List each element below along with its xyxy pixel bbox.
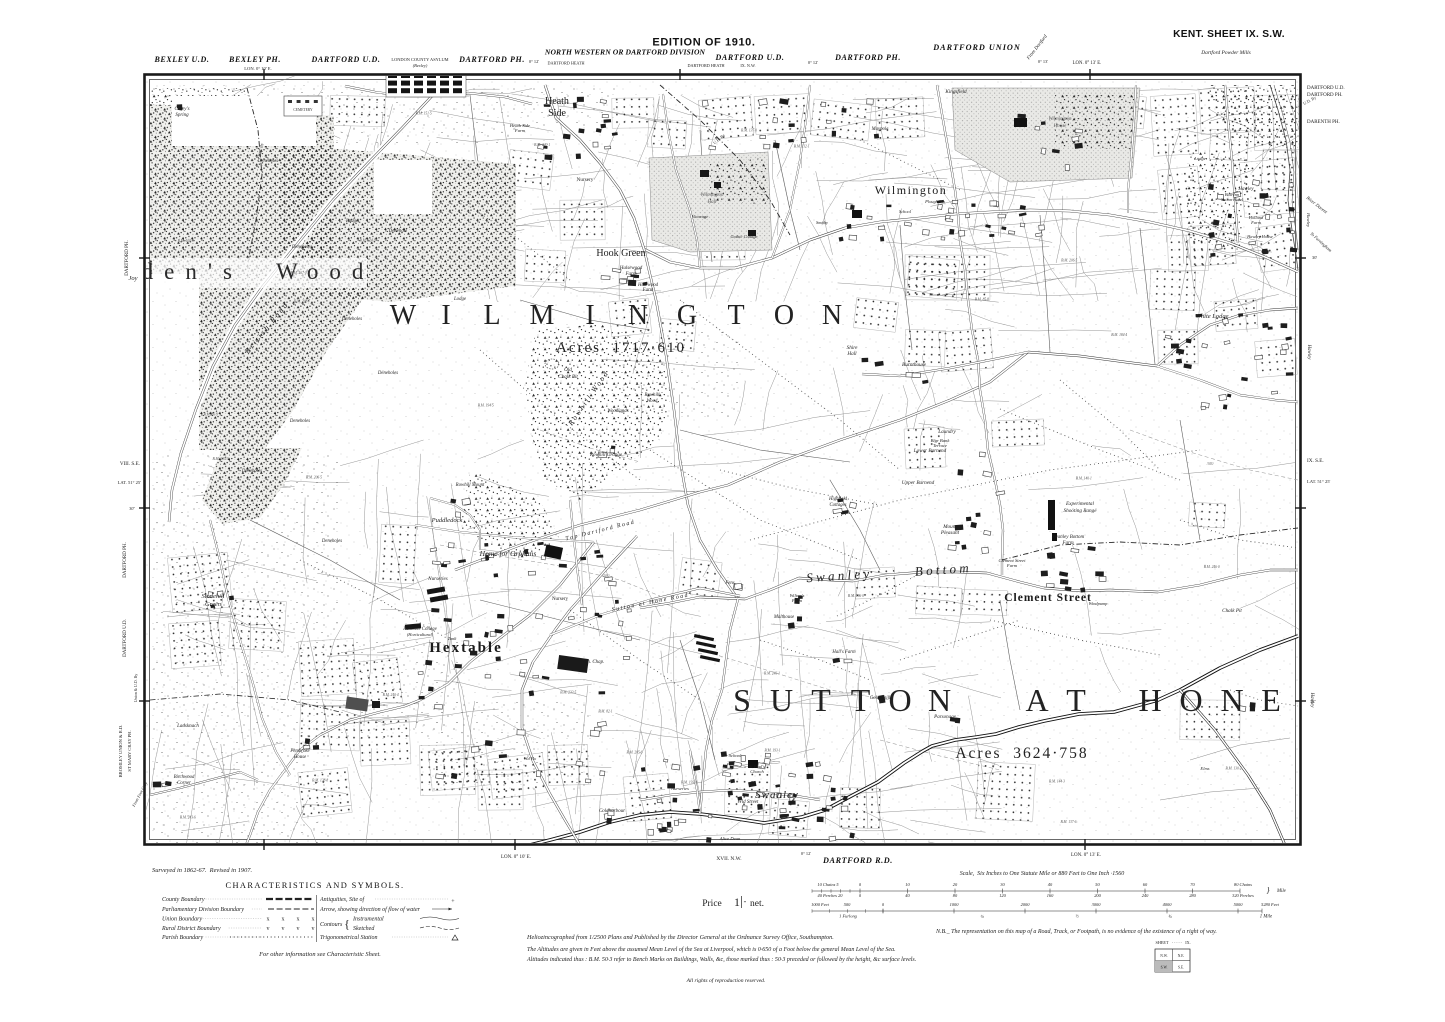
svg-text:Heath: Heath bbox=[545, 96, 569, 107]
svg-text:S: S bbox=[733, 682, 751, 718]
svg-text:Union & U.D. By: Union & U.D. By bbox=[133, 674, 138, 703]
svg-text:Goldenhill: Goldenhill bbox=[870, 696, 891, 701]
svg-text:DARTFORD PH.: DARTFORD PH. bbox=[458, 55, 525, 64]
svg-text:Farm: Farm bbox=[1006, 563, 1018, 568]
svg-text:L: L bbox=[483, 300, 500, 331]
svg-text:Chalk Pit: Chalk Pit bbox=[1222, 608, 1242, 614]
svg-text:G: G bbox=[677, 300, 697, 331]
svg-text:Rowhill Mount: Rowhill Mount bbox=[455, 483, 485, 488]
svg-text:N: N bbox=[628, 300, 648, 331]
svg-text:House: House bbox=[1053, 124, 1068, 129]
svg-text:Maypole: Maypole bbox=[871, 127, 890, 132]
svg-text:Rowhill Grange: Rowhill Grange bbox=[589, 453, 623, 458]
svg-text:Sutton Hotel: Sutton Hotel bbox=[1221, 197, 1244, 202]
svg-text:Highfield: Highfield bbox=[828, 497, 848, 502]
svg-text:Coldharbour: Coldharbour bbox=[599, 809, 625, 814]
svg-text:DARTFORD HEATH: DARTFORD HEATH bbox=[547, 61, 584, 66]
svg-text:Ladsknach: Ladsknach bbox=[176, 724, 199, 729]
svg-text:-: - bbox=[744, 897, 747, 906]
svg-text:30'': 30'' bbox=[129, 506, 135, 511]
svg-text:W: W bbox=[390, 300, 417, 331]
svg-text:Burnthouse: Burnthouse bbox=[902, 362, 927, 368]
svg-text:(Horticultural): (Horticultural) bbox=[407, 632, 434, 637]
svg-text:Plough Inn: Plough Inn bbox=[924, 199, 945, 204]
svg-text:Farm: Farm bbox=[514, 128, 526, 133]
svg-text:240: 240 bbox=[1142, 893, 1149, 898]
svg-text:B.M. 137·0: B.M. 137·0 bbox=[741, 129, 757, 133]
svg-text:LON. 0° 13' E.: LON. 0° 13' E. bbox=[1071, 853, 1101, 858]
svg-text:DARTFORD PH.: DARTFORD PH. bbox=[834, 53, 901, 62]
svg-text:x: x bbox=[282, 917, 285, 923]
svg-text:B.M. 167·0: B.M. 167·0 bbox=[291, 271, 307, 275]
svg-text:B.M. 240·1: B.M. 240·1 bbox=[534, 143, 550, 147]
svg-text:30'': 30'' bbox=[1310, 699, 1316, 704]
svg-text:Dartford Powder Mills: Dartford Powder Mills bbox=[1200, 49, 1251, 56]
svg-text:1 Mile: 1 Mile bbox=[1260, 915, 1273, 920]
svg-text:XVII. N.W.: XVII. N.W. bbox=[716, 856, 741, 862]
svg-text:BROMLEY UNION & R.D.: BROMLEY UNION & R.D. bbox=[118, 725, 123, 778]
svg-text:B.M. 112·1: B.M. 112·1 bbox=[794, 145, 810, 149]
svg-text:School: School bbox=[899, 209, 912, 214]
svg-text:Church: Church bbox=[750, 769, 764, 774]
svg-text:30': 30' bbox=[1312, 255, 1317, 260]
svg-text:LON. 0° 13' E.: LON. 0° 13' E. bbox=[1073, 61, 1102, 66]
svg-text:B.M. 240·4: B.M. 240·4 bbox=[383, 693, 399, 697]
svg-text:T: T bbox=[811, 682, 831, 718]
svg-text:4000: 4000 bbox=[1163, 902, 1173, 907]
svg-text:N.E.: N.E. bbox=[1178, 954, 1185, 958]
svg-text:Farm: Farm bbox=[1061, 541, 1074, 546]
svg-text:B.M. 138·8: B.M. 138·8 bbox=[312, 779, 328, 783]
svg-text:Antiquities, Site of: Antiquities, Site of bbox=[319, 896, 365, 903]
svg-text:Alice Dean: Alice Dean bbox=[719, 836, 741, 841]
svg-text:DARTFORD U.D.: DARTFORD U.D. bbox=[715, 53, 785, 62]
svg-text:Hawley: Hawley bbox=[1237, 187, 1254, 192]
svg-text:Windpump: Windpump bbox=[1089, 601, 1109, 606]
svg-text:Green: Green bbox=[205, 601, 221, 608]
svg-text:Instrumental: Instrumental bbox=[352, 917, 384, 923]
svg-text:Malthouse: Malthouse bbox=[773, 615, 795, 620]
svg-text:Trigonometrical Station: Trigonometrical Station bbox=[320, 935, 378, 941]
svg-text:IX. S.E.: IX. S.E. bbox=[1307, 458, 1324, 464]
svg-text:B.M. 193·1: B.M. 193·1 bbox=[765, 749, 781, 753]
svg-text:School: School bbox=[729, 753, 742, 758]
svg-text:Hawley House: Hawley House bbox=[1246, 234, 1273, 239]
svg-text:Deneholes: Deneholes bbox=[291, 245, 312, 250]
svg-text:x: x bbox=[312, 917, 315, 923]
svg-text:LON. 0° 10' E.: LON. 0° 10' E. bbox=[244, 66, 272, 71]
svg-text:Corner: Corner bbox=[177, 781, 191, 786]
svg-text:Meth. Chap.: Meth. Chap. bbox=[579, 660, 605, 665]
svg-text:O: O bbox=[774, 300, 794, 331]
svg-text:5000: 5000 bbox=[1234, 902, 1244, 907]
svg-text:Wld Street: Wld Street bbox=[738, 800, 759, 805]
svg-text:T: T bbox=[1066, 682, 1086, 718]
svg-text:Terrace: Terrace bbox=[933, 443, 947, 448]
svg-text:v: v bbox=[267, 926, 270, 932]
svg-text:1: 1 bbox=[734, 895, 740, 909]
svg-text:Lodge: Lodge bbox=[1193, 156, 1205, 161]
svg-text:500: 500 bbox=[844, 902, 851, 907]
svg-text:DARTFORD PH.: DARTFORD PH. bbox=[123, 542, 128, 578]
svg-text:1 Furlong: 1 Furlong bbox=[839, 914, 857, 919]
svg-text:Swanley Bottom: Swanley Bottom bbox=[1052, 535, 1085, 540]
svg-text:B.M. 233·5: B.M. 233·5 bbox=[560, 690, 576, 694]
svg-text:0° 13': 0° 13' bbox=[1038, 59, 1048, 64]
svg-text:BEXLEY PH.: BEXLEY PH. bbox=[228, 55, 281, 64]
svg-text:Spring: Spring bbox=[175, 113, 189, 118]
svg-text:Hall's Farm: Hall's Farm bbox=[831, 650, 856, 655]
svg-text:B.M. 137·6: B.M. 137·6 bbox=[1060, 820, 1076, 824]
svg-text:Sketched: Sketched bbox=[353, 926, 375, 932]
svg-text:BEXLEY U.D.: BEXLEY U.D. bbox=[154, 55, 210, 64]
svg-text:Wood: Wood bbox=[647, 399, 658, 404]
svg-text:House: House bbox=[293, 755, 307, 760]
svg-text:Farm: Farm bbox=[624, 272, 637, 277]
svg-text:Kingsfield: Kingsfield bbox=[944, 88, 967, 95]
svg-text:Laundry: Laundry bbox=[937, 429, 956, 435]
svg-text:DARTFORD U.D.: DARTFORD U.D. bbox=[311, 55, 381, 64]
svg-text:320 Perches: 320 Perches bbox=[1232, 893, 1254, 898]
svg-text:LAT. 51° 25': LAT. 51° 25' bbox=[1307, 479, 1331, 484]
svg-text:Deneholes: Deneholes bbox=[257, 159, 278, 164]
svg-text:Experimental: Experimental bbox=[1065, 501, 1095, 507]
svg-text:Old: Old bbox=[564, 367, 572, 373]
svg-text:Hawley: Hawley bbox=[1306, 344, 1311, 361]
svg-text:B.M. 151·5: B.M. 151·5 bbox=[416, 111, 432, 115]
svg-text:N.B._ The representation on th: N.B._ The representation on this map of … bbox=[935, 928, 1217, 935]
svg-text:Nursery: Nursery bbox=[552, 597, 569, 602]
svg-text:Pembroke: Pembroke bbox=[289, 749, 310, 754]
svg-text:1000 Feet: 1000 Feet bbox=[811, 902, 829, 907]
svg-text:E: E bbox=[1261, 682, 1281, 718]
svg-text:0° 12': 0° 12' bbox=[529, 59, 539, 64]
svg-text:Cottages: Cottages bbox=[829, 503, 846, 508]
svg-text:Deneholes: Deneholes bbox=[321, 539, 342, 544]
svg-text:Acres 3624·758: Acres 3624·758 bbox=[955, 745, 1088, 762]
svg-text:Hook Green: Hook Green bbox=[596, 248, 645, 259]
svg-text:B.M. 140·1: B.M. 140·1 bbox=[1076, 476, 1092, 480]
svg-text:U: U bbox=[770, 682, 793, 718]
svg-text:N: N bbox=[1220, 682, 1243, 718]
svg-text:DARTFORD UNION: DARTFORD UNION bbox=[932, 43, 1021, 52]
svg-text:Surveyed in 1862-67. Revised: Surveyed in 1862-67. Revised in 1907. bbox=[152, 867, 252, 874]
svg-text:Elms: Elms bbox=[1199, 766, 1209, 771]
svg-text:CHARACTERISTICS AND SYMBOLS.: CHARACTERISTICS AND SYMBOLS. bbox=[225, 881, 404, 890]
svg-text:KENT. SHEET IX. S.W.: KENT. SHEET IX. S.W. bbox=[1173, 29, 1285, 40]
svg-text:Contours: Contours bbox=[320, 922, 343, 928]
svg-text:Mile: Mile bbox=[1276, 889, 1287, 894]
svg-text:DARENTH PH.: DARENTH PH. bbox=[1307, 120, 1340, 125]
svg-text:B.M. 193·0: B.M. 193·0 bbox=[681, 780, 697, 784]
svg-text:Union Boundary: Union Boundary bbox=[162, 917, 203, 923]
svg-text:Tank: Tank bbox=[448, 636, 457, 641]
svg-text:SHEET: SHEET bbox=[1155, 940, 1168, 945]
svg-text:N: N bbox=[928, 682, 951, 718]
svg-text:Shooting Range: Shooting Range bbox=[1064, 508, 1098, 514]
svg-text:Altitudes indicated thus : B.M: Altitudes indicated thus : B.M. 50·3 ref… bbox=[526, 956, 916, 963]
svg-text:B.M. 246·0: B.M. 246·0 bbox=[1204, 565, 1220, 569]
svg-text:O: O bbox=[888, 682, 911, 718]
svg-text:0° 12': 0° 12' bbox=[808, 60, 818, 65]
svg-text:Heliozincographed from 1/2500: Heliozincographed from 1/2500 Plans and … bbox=[526, 934, 834, 941]
svg-text:IX. N.W.: IX. N.W. bbox=[740, 63, 755, 68]
svg-text:Pleasant: Pleasant bbox=[940, 530, 960, 536]
svg-text:DARTFORD R.D.: DARTFORD R.D. bbox=[822, 856, 893, 865]
svg-text:B.M. 235·3: B.M. 235·3 bbox=[212, 457, 228, 461]
svg-text:LAT. 51° 25': LAT. 51° 25' bbox=[118, 480, 142, 485]
svg-text:5280 Feet: 5280 Feet bbox=[1261, 902, 1279, 907]
svg-text:Wilmington: Wilmington bbox=[875, 183, 948, 197]
svg-text:Deneholes: Deneholes bbox=[289, 419, 310, 424]
svg-text:Parsonage: Parsonage bbox=[933, 715, 956, 720]
svg-text:(Bexley): (Bexley) bbox=[413, 63, 428, 68]
svg-text:IX.: IX. bbox=[1185, 940, 1190, 945]
svg-text:DARTFORD U.D.: DARTFORD U.D. bbox=[1307, 86, 1345, 91]
svg-text:Clement Street: Clement Street bbox=[1004, 592, 1092, 604]
svg-text:Wilmington: Wilmington bbox=[700, 193, 724, 198]
svg-text:3000: 3000 bbox=[1092, 902, 1102, 907]
svg-text:Stonehill: Stonehill bbox=[201, 593, 224, 600]
svg-text:Parish Boundary: Parish Boundary bbox=[161, 935, 204, 941]
svg-text:Deneholes: Deneholes bbox=[241, 469, 262, 474]
svg-text:ST MARY CRAY PH.: ST MARY CRAY PH. bbox=[127, 730, 132, 771]
svg-text:Gothic Cottage: Gothic Cottage bbox=[731, 234, 758, 239]
svg-text:Puddledock: Puddledock bbox=[431, 517, 463, 524]
svg-text:Farm: Farm bbox=[791, 598, 803, 603]
svg-text:Deneholes: Deneholes bbox=[377, 371, 398, 376]
svg-text:Birchwood: Birchwood bbox=[174, 775, 195, 780]
svg-text:Lodge: Lodge bbox=[453, 297, 467, 302]
svg-text:T: T bbox=[727, 300, 744, 331]
svg-text:Vicarage: Vicarage bbox=[692, 214, 709, 219]
svg-text:Woodlands: Woodlands bbox=[607, 409, 628, 414]
svg-text:Hall: Hall bbox=[707, 200, 718, 205]
svg-text:O: O bbox=[1179, 682, 1202, 718]
svg-text:1000: 1000 bbox=[950, 902, 960, 907]
svg-text:B.M. 144·3: B.M. 144·3 bbox=[1049, 780, 1065, 784]
svg-text:County Boundary: County Boundary bbox=[162, 897, 205, 903]
svg-text:NORTH WESTERN OR DARTFORD DIVI: NORTH WESTERN OR DARTFORD DIVISION bbox=[544, 48, 706, 57]
svg-text:T: T bbox=[851, 682, 871, 718]
svg-text:Hall: Hall bbox=[846, 351, 857, 357]
svg-text:S.E.: S.E. bbox=[1178, 966, 1184, 970]
svg-text:Denehole: Denehole bbox=[388, 229, 408, 234]
svg-text:Chalk Pit: Chalk Pit bbox=[558, 374, 578, 380]
svg-text:Parliamentary Division Boundar: Parliamentary Division Boundary bbox=[161, 907, 244, 913]
svg-text:A: A bbox=[1025, 682, 1048, 718]
svg-text:Hextable: Hextable bbox=[429, 640, 503, 656]
svg-text:All rights of reproduction res: All rights of reproduction reserved. bbox=[686, 977, 766, 984]
svg-text:Home for Orphans: Home for Orphans bbox=[479, 549, 537, 558]
svg-text:160: 160 bbox=[1047, 893, 1054, 898]
svg-text:x: x bbox=[267, 917, 270, 923]
svg-text:v: v bbox=[282, 926, 285, 932]
svg-text:Nurseries: Nurseries bbox=[427, 577, 448, 582]
svg-text:M: M bbox=[530, 300, 555, 331]
svg-text:Nurseries: Nurseries bbox=[670, 786, 689, 791]
svg-text:Farm: Farm bbox=[642, 288, 654, 293]
svg-text:VIII. S.E.: VIII. S.E. bbox=[120, 461, 140, 467]
svg-text:120: 120 bbox=[999, 893, 1006, 898]
svg-text:den's Wood: den's Wood bbox=[142, 259, 375, 284]
svg-text:N: N bbox=[822, 300, 842, 331]
svg-text:0° 12': 0° 12' bbox=[801, 851, 811, 856]
svg-text:v: v bbox=[297, 926, 300, 932]
svg-text:N.W.: N.W. bbox=[1160, 954, 1168, 958]
svg-text:Upper Barnend: Upper Barnend bbox=[902, 480, 935, 486]
svg-text:B.M. 208·7: B.M. 208·7 bbox=[294, 299, 310, 303]
svg-text:I: I bbox=[441, 300, 450, 331]
svg-text:B.M. 246·1: B.M. 246·1 bbox=[764, 672, 780, 676]
svg-text:net.: net. bbox=[750, 899, 764, 909]
svg-text:Swanley: Swanley bbox=[755, 789, 799, 801]
svg-text:H: H bbox=[1138, 682, 1161, 718]
svg-text:B.M. 194·5: B.M. 194·5 bbox=[478, 404, 494, 408]
svg-text:Lodge: Lodge bbox=[345, 219, 359, 224]
svg-text:Carey's: Carey's bbox=[174, 107, 189, 112]
svg-text:Fens: Fens bbox=[724, 581, 734, 586]
svg-text:B.M. 100·9: B.M. 100·9 bbox=[178, 239, 194, 243]
svg-text:Side: Side bbox=[548, 108, 566, 119]
svg-text:B.M. 82·1: B.M. 82·1 bbox=[598, 710, 612, 714]
svg-text:White Lodge: White Lodge bbox=[1195, 313, 1228, 320]
svg-text:DARTFORD U.D.: DARTFORD U.D. bbox=[123, 619, 128, 657]
svg-text:Rural District Boundary: Rural District Boundary bbox=[161, 926, 221, 932]
svg-text:Farm: Farm bbox=[1250, 220, 1261, 225]
svg-text:B.M. 85·8: B.M. 85·8 bbox=[975, 297, 989, 301]
svg-text:Deneholes: Deneholes bbox=[341, 317, 362, 322]
svg-text:B.M. 184·4: B.M. 184·4 bbox=[1111, 333, 1127, 337]
svg-text:{: { bbox=[344, 917, 350, 931]
svg-text:B.M. 224·9: B.M. 224·9 bbox=[360, 238, 376, 242]
svg-text:Wilmington: Wilmington bbox=[1048, 117, 1072, 122]
svg-text:Smithy: Smithy bbox=[816, 220, 828, 225]
svg-text:S.W.: S.W. bbox=[1161, 966, 1168, 970]
svg-text:Rowhill: Rowhill bbox=[644, 393, 661, 398]
svg-text:280: 280 bbox=[1189, 893, 1196, 898]
svg-text:40 Perches 20: 40 Perches 20 bbox=[818, 893, 844, 898]
svg-text:B.M. 206·5: B.M. 206·5 bbox=[306, 475, 322, 479]
svg-text:Hulsewood: Hulsewood bbox=[619, 266, 643, 271]
svg-text:10 Chains 5: 10 Chains 5 bbox=[817, 882, 839, 887]
svg-text:B.M. 130·2: B.M. 130·2 bbox=[1226, 766, 1242, 770]
svg-text:B.M. 196·0: B.M. 196·0 bbox=[848, 594, 864, 598]
svg-text:B.M. 205·6: B.M. 205·6 bbox=[626, 751, 642, 755]
svg-text:B.M. 243·6: B.M. 243·6 bbox=[180, 816, 196, 820]
svg-text:Price: Price bbox=[702, 899, 722, 909]
svg-text:Acres 1717·610: Acres 1717·610 bbox=[556, 340, 686, 356]
svg-text:B.M. 86·9: B.M. 86·9 bbox=[204, 412, 218, 416]
svg-text:Nursery: Nursery bbox=[577, 177, 594, 183]
svg-text:I: I bbox=[585, 300, 594, 331]
svg-text:For other information see Char: For other information see Characteristic… bbox=[258, 951, 381, 958]
svg-text:DARTFORD PH.: DARTFORD PH. bbox=[125, 240, 130, 276]
svg-text:Lower Barnend: Lower Barnend bbox=[913, 448, 947, 454]
svg-text:2000: 2000 bbox=[1021, 902, 1031, 907]
svg-text:DARTFORD HEATH: DARTFORD HEATH bbox=[687, 63, 724, 68]
svg-text:Scale, Six Inches to One Stat: Scale, Six Inches to One Statute Mile or… bbox=[960, 871, 1125, 877]
svg-text:300: 300 bbox=[1207, 461, 1215, 466]
svg-text:v: v bbox=[312, 926, 315, 932]
svg-text:200: 200 bbox=[1094, 893, 1101, 898]
svg-text:80 Chains: 80 Chains bbox=[1234, 882, 1252, 887]
svg-text:LONDON COUNTY ASYLUM: LONDON COUNTY ASYLUM bbox=[391, 57, 448, 62]
svg-text:CEMETERY: CEMETERY bbox=[293, 108, 313, 112]
svg-text:Wd Ho: Wd Ho bbox=[524, 756, 537, 761]
svg-text:B.M. 206·5: B.M. 206·5 bbox=[1061, 258, 1077, 262]
svg-text:x: x bbox=[297, 917, 300, 923]
svg-text:Hawley: Hawley bbox=[1306, 212, 1311, 228]
svg-text:The Altitudes are given in Fee: The Altitudes are given in Feet above th… bbox=[527, 946, 896, 953]
svg-text:LON. 0° 10' E.: LON. 0° 10' E. bbox=[501, 855, 531, 860]
svg-text:Arrow, showing direction of fl: Arrow, showing direction of flow of wate… bbox=[319, 906, 421, 913]
